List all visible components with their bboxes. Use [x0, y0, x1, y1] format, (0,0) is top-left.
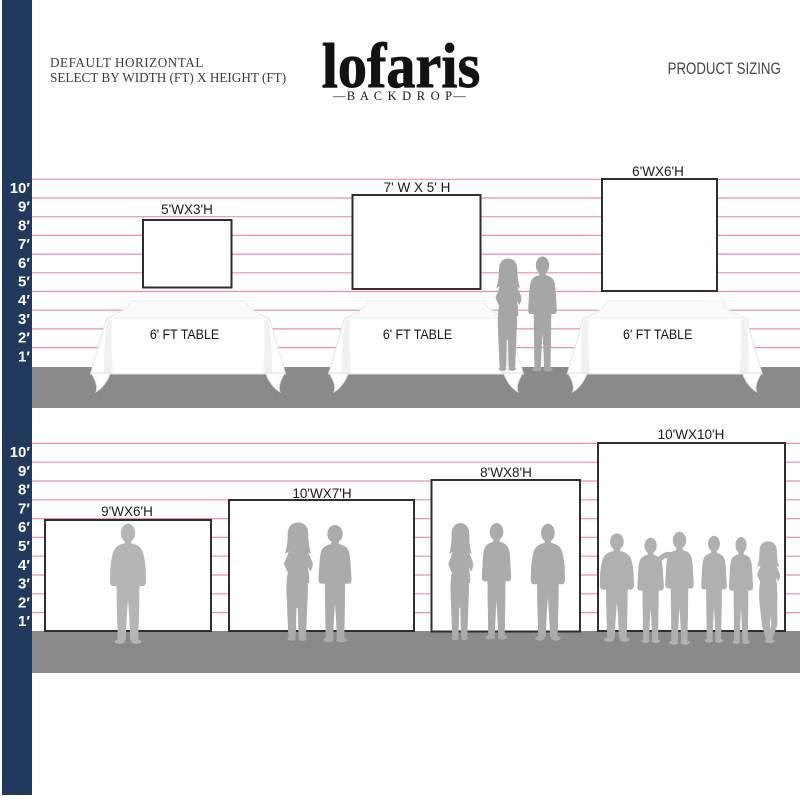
svg-text:4′: 4′ — [18, 292, 30, 309]
svg-text:7' W X 5' H: 7' W X 5' H — [384, 180, 451, 195]
svg-text:2′: 2′ — [18, 330, 30, 347]
svg-text:9'WX6'H: 9'WX6'H — [101, 504, 153, 519]
svg-text:8'WX8'H: 8'WX8'H — [480, 465, 532, 480]
svg-text:8′: 8′ — [18, 217, 30, 234]
svg-text:6' FT TABLE: 6' FT TABLE — [623, 327, 693, 343]
svg-text:PRODUCT SIZING: PRODUCT SIZING — [668, 60, 781, 79]
svg-text:10′: 10′ — [10, 444, 31, 461]
svg-text:3′: 3′ — [18, 576, 30, 593]
svg-text:1′: 1′ — [18, 613, 30, 630]
svg-text:6′: 6′ — [18, 519, 30, 536]
svg-text:SELECT BY WIDTH (FT) X HEIGHT: SELECT BY WIDTH (FT) X HEIGHT (FT) — [50, 70, 286, 85]
svg-text:10′: 10′ — [10, 180, 31, 197]
svg-text:6' FT TABLE: 6' FT TABLE — [150, 327, 220, 343]
svg-text:—B A C K D R O P—: —B A C K D R O P— — [332, 89, 467, 103]
svg-text:8′: 8′ — [18, 482, 30, 499]
svg-text:4′: 4′ — [18, 557, 30, 574]
svg-text:DEFAULT HORIZONTAL: DEFAULT HORIZONTAL — [50, 55, 204, 70]
svg-text:5′: 5′ — [18, 274, 30, 291]
svg-text:1′: 1′ — [18, 348, 30, 365]
svg-text:3′: 3′ — [18, 311, 30, 328]
svg-text:5'WX3'H: 5'WX3'H — [161, 202, 213, 217]
svg-text:5′: 5′ — [18, 538, 30, 555]
svg-text:7′: 7′ — [18, 500, 30, 517]
svg-text:10'WX7'H: 10'WX7'H — [292, 486, 351, 501]
svg-text:10'WX10'H: 10'WX10'H — [658, 427, 725, 442]
svg-text:6' FT TABLE: 6' FT TABLE — [383, 327, 453, 343]
svg-text:9′: 9′ — [18, 199, 30, 216]
svg-text:6′: 6′ — [18, 255, 30, 272]
svg-text:9′: 9′ — [18, 463, 30, 480]
svg-text:6'WX6'H: 6'WX6'H — [632, 164, 684, 179]
svg-text:7′: 7′ — [18, 236, 30, 253]
svg-text:2′: 2′ — [18, 594, 30, 611]
